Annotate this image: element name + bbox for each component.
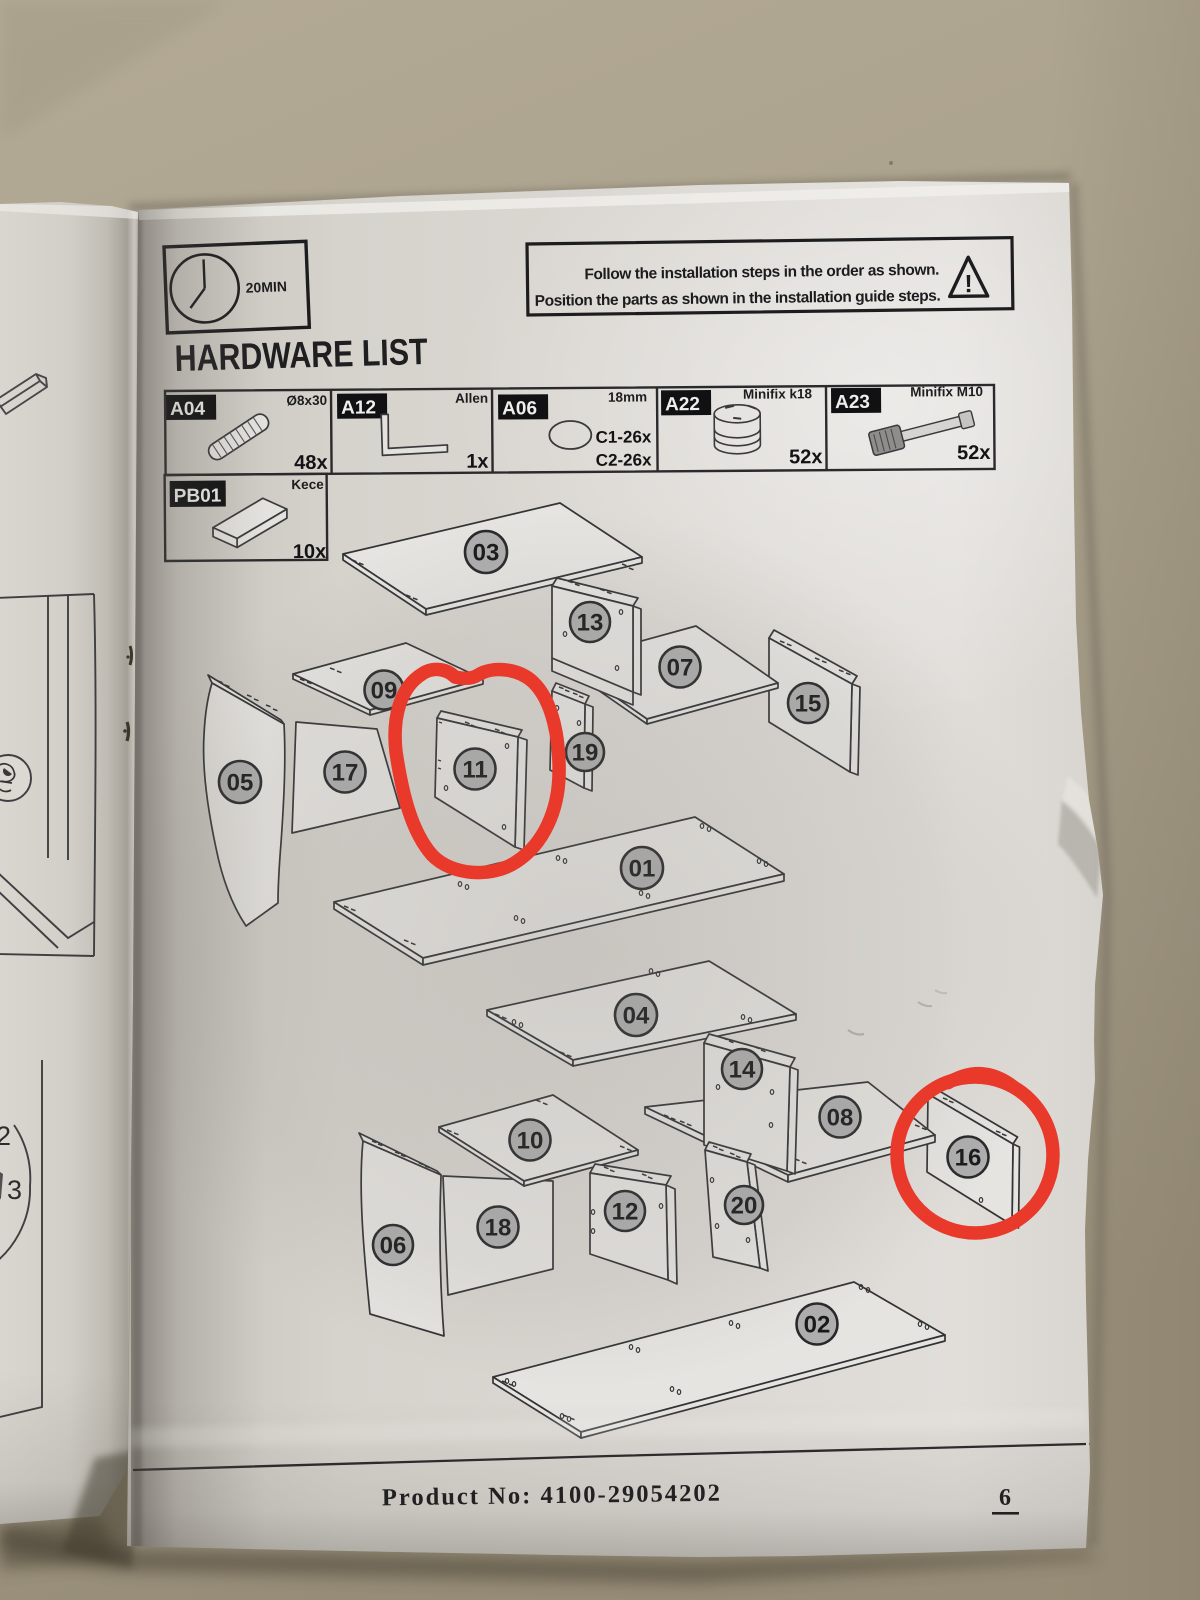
svg-text:10x: 10x	[293, 541, 327, 563]
svg-text:Allen: Allen	[455, 391, 488, 406]
svg-text:Kece: Kece	[291, 477, 324, 492]
svg-text:C2-26x: C2-26x	[596, 450, 652, 469]
svg-text:1x: 1x	[466, 451, 488, 473]
svg-text:A22: A22	[665, 394, 700, 415]
svg-text:A06: A06	[502, 398, 537, 419]
svg-text:Ø8x30: Ø8x30	[286, 393, 327, 408]
svg-text:Minifix k18: Minifix k18	[743, 386, 813, 402]
svg-text:52x: 52x	[957, 442, 991, 464]
svg-text:Minifix M10: Minifix M10	[910, 384, 983, 400]
svg-text:!: !	[964, 270, 973, 298]
svg-text:A23: A23	[835, 392, 870, 413]
svg-text:C1-26x: C1-26x	[596, 427, 652, 446]
svg-text:48x: 48x	[294, 452, 328, 474]
svg-text:3: 3	[7, 1175, 22, 1205]
svg-text:52x: 52x	[789, 446, 823, 468]
svg-text:A12: A12	[341, 397, 376, 418]
svg-text:18mm: 18mm	[608, 389, 647, 404]
svg-text:2: 2	[0, 1121, 11, 1151]
